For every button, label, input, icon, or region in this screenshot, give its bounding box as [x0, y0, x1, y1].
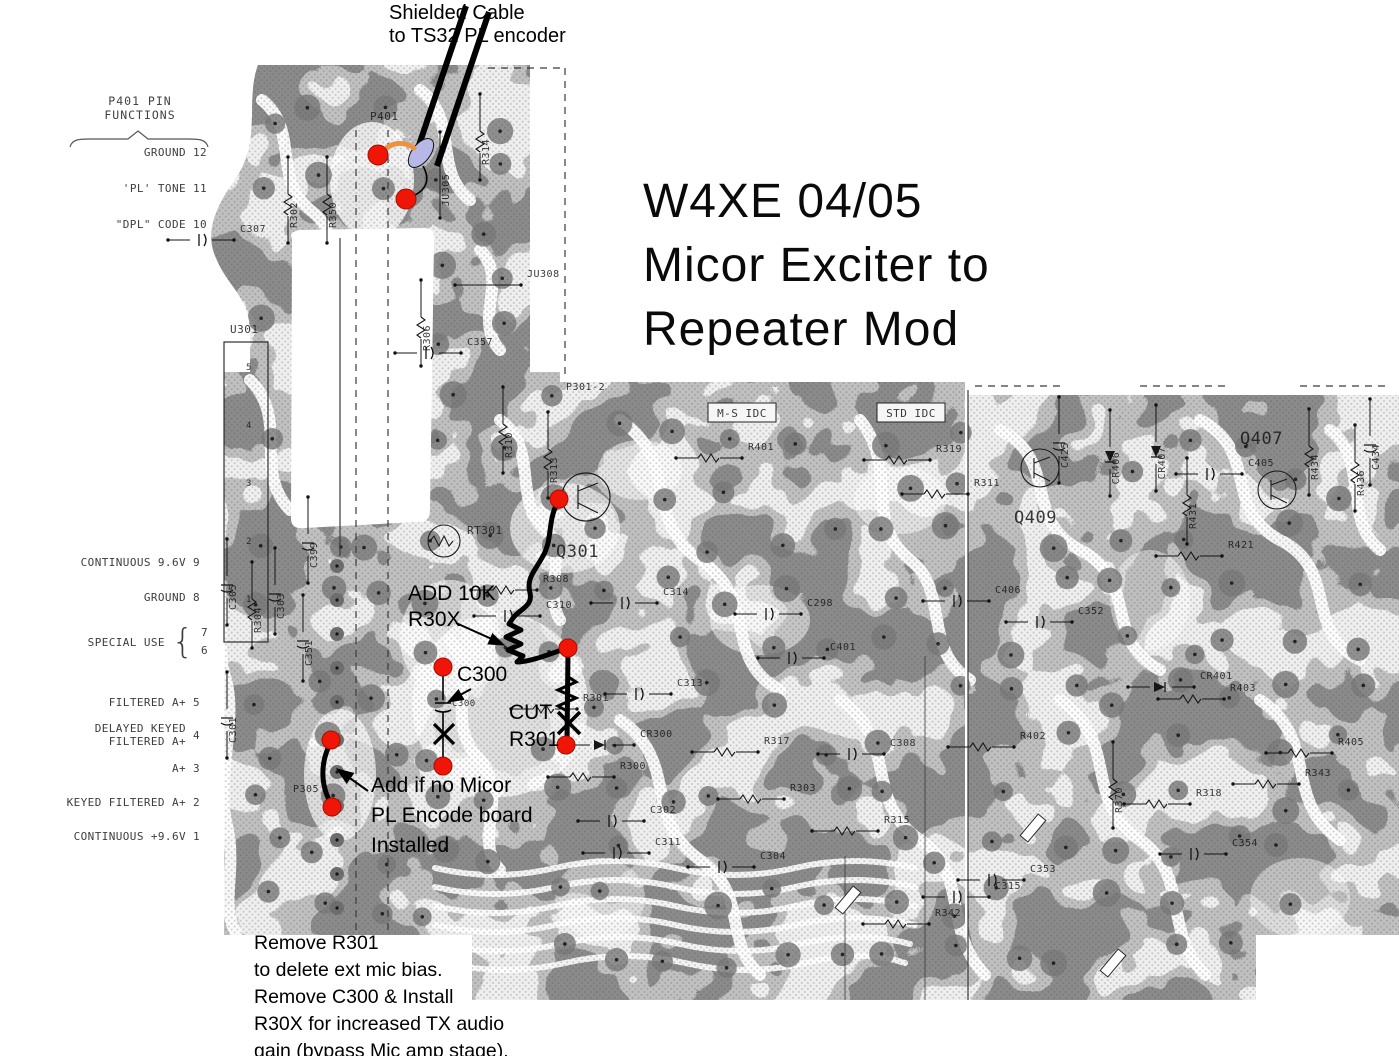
- pin-function-label: CONTINUOUS 9.6V: [81, 556, 186, 569]
- pcb-ref-label: C315: [995, 881, 1021, 892]
- c300-callout: C300: [457, 663, 507, 687]
- pcb-ref-label: CR406: [1111, 452, 1122, 485]
- pin-function-label: SPECIAL USE: [88, 636, 165, 649]
- pcb-ref-label: C311: [655, 837, 681, 848]
- pcb-ref-label: 4: [246, 421, 252, 431]
- pcb-ref-label: R401: [748, 442, 774, 453]
- pin-function-row: GROUND12: [0, 146, 208, 159]
- pin-number: 3: [193, 762, 208, 775]
- pcb-ref-label: R343: [1305, 768, 1331, 779]
- page-title: W4XE 04/05 Micor Exciter to Repeater Mod: [643, 170, 990, 362]
- shielded-cable-note: Shielded Cable to TS32 PL encoder: [389, 2, 566, 48]
- bottom-instructions: Remove R301 to delete ext mic bias. Remo…: [254, 930, 509, 1056]
- pin-function-row: GROUND8: [0, 591, 208, 604]
- pcb-ref-label: C314: [663, 587, 689, 598]
- pcb-ref-label: Q407: [1240, 429, 1283, 449]
- pcb-ref-label: JU308: [527, 269, 560, 280]
- pcb-ref-label: C357: [467, 337, 493, 348]
- pcb-ref-label: R405: [1338, 737, 1364, 748]
- pcb-ref-label: C351: [304, 640, 315, 666]
- pcb-ref-label: C313: [677, 678, 703, 689]
- pin-number: 2: [193, 796, 208, 809]
- pcb-ref-label: C301: [228, 717, 239, 743]
- pcb-ref-label: P301-2: [566, 382, 605, 393]
- pcb-ref-label: R318: [1196, 788, 1222, 799]
- pcb-ref-label: C425: [1060, 442, 1071, 468]
- pcb-ref-label: 5: [246, 363, 252, 373]
- pcb-ref-label: JU305: [441, 174, 452, 207]
- pcb-ref-label: R402: [1020, 731, 1046, 742]
- pin-brace: {: [172, 625, 194, 659]
- pcb-ref-label: R315: [884, 815, 910, 826]
- pin-function-row: CONTINUOUS +9.6V1: [0, 830, 208, 843]
- pin-function-row: "DPL" CODE10: [0, 218, 208, 231]
- pin-function-row: KEYED FILTERED A+2: [0, 796, 208, 809]
- pcb-ref-label: C352: [1078, 606, 1104, 617]
- pcb-ref-label: C305: [228, 584, 239, 610]
- pcb-ref-label: C405: [1248, 458, 1274, 469]
- pcb-ref-label: R308: [543, 574, 569, 585]
- pin-function-row: DELAYED KEYED FILTERED A+4: [0, 722, 208, 748]
- pcb-ref-label: R403: [1230, 683, 1256, 694]
- pcb-ref-label: R300: [620, 761, 646, 772]
- pcb-ref-label: C298: [807, 598, 833, 609]
- pin-function-row: FILTERED A+5: [0, 696, 208, 709]
- pin-function-label: 'PL' TONE: [123, 182, 186, 195]
- pcb-ref-label: STD IDC: [886, 407, 936, 420]
- pcb-ref-label: R421: [1228, 540, 1254, 551]
- pcb-ref-label: C401: [830, 642, 856, 653]
- pcb-ref-label: C434: [1371, 444, 1382, 470]
- pcb-scan-image: P401R314JU305R350R302C307JU308U301R306C3…: [0, 0, 1399, 1056]
- pcb-ref-label: C307: [240, 224, 266, 235]
- pcb-ref-label: Q301: [556, 542, 599, 562]
- pin-number: 12: [193, 146, 208, 159]
- pcb-ref-label: R342: [935, 908, 961, 919]
- pin-number: 7 6: [201, 624, 208, 660]
- pcb-ref-label: 1: [246, 595, 252, 605]
- pcb-ref-label: M-S IDC: [717, 407, 767, 420]
- pcb-ref-label: U301: [230, 323, 259, 336]
- pin-function-row: 'PL' TONE11: [0, 182, 208, 195]
- pin-function-label: CONTINUOUS +9.6V: [74, 830, 186, 843]
- pcb-ref-label: 2: [246, 537, 252, 547]
- pin-number: 10: [193, 218, 208, 231]
- cut-r301-note: CUT R301: [509, 699, 559, 753]
- pin-function-row: A+3: [0, 762, 208, 775]
- pcb-ref-label: C308: [890, 738, 916, 749]
- pin-functions-brace: [70, 131, 208, 147]
- pin-function-label: A+: [172, 762, 186, 775]
- pin-number: 11: [193, 182, 208, 195]
- pcb-ref-label: P401: [370, 110, 399, 123]
- pcb-ref-label: R301: [583, 693, 609, 704]
- pin-function-label: "DPL" CODE: [116, 218, 186, 231]
- pcb-ref-label: 3: [246, 479, 252, 489]
- pcb-ref-label: C406: [995, 585, 1021, 596]
- pcb-ref-label: C353: [1030, 864, 1056, 875]
- pin-functions-heading: P401 PIN FUNCTIONS: [78, 94, 202, 122]
- pcb-ref-label: C304: [760, 851, 786, 862]
- pin-number: 5: [193, 696, 208, 709]
- pcb-ref-label: R311: [974, 478, 1000, 489]
- pcb-ref-label: C399: [309, 542, 320, 568]
- pin-number: 1: [193, 830, 208, 843]
- pin-function-label: DELAYED KEYED FILTERED A+: [95, 722, 186, 748]
- pin-function-label: GROUND: [144, 591, 186, 604]
- pcb-ref-label: Q409: [1014, 508, 1057, 528]
- pin-function-label: FILTERED A+: [109, 696, 186, 709]
- pcb-ref-label: C354: [1232, 838, 1258, 849]
- board-notch: [291, 228, 434, 528]
- add-jumper-note: Add if no Micor PL Encode board Installe…: [371, 771, 533, 861]
- pin-number: 9: [193, 556, 208, 569]
- pin-number: 8: [193, 591, 208, 604]
- pcb-ref-label: C310: [546, 600, 572, 611]
- pcb-ref-label: R303: [790, 783, 816, 794]
- pin-number: 4: [193, 729, 208, 742]
- pcb-ref-label: CR407: [1157, 447, 1168, 480]
- pcb-ref-label: CR300: [640, 729, 673, 740]
- pin-function-label: KEYED FILTERED A+: [67, 796, 186, 809]
- pcb-ref-label: P305: [293, 784, 319, 795]
- pin-function-row: SPECIAL USE{7 6: [0, 624, 208, 660]
- pcb-ref-label: R317: [764, 736, 790, 747]
- pcb-ref-label: RT301: [467, 524, 503, 537]
- r301-lead-wire: [567, 650, 568, 744]
- pcb-ref-label: C302: [650, 805, 676, 816]
- pcb-mod-diagram: P401R314JU305R350R302C307JU308U301R306C3…: [0, 0, 1399, 1056]
- pin-function-label: GROUND: [144, 146, 186, 159]
- add-10k-note: ADD 10K R30X: [408, 581, 496, 633]
- pcb-ref-label: C303: [276, 593, 287, 619]
- pcb-ref-label: CR401: [1200, 671, 1233, 682]
- pcb-ref-label: R319: [936, 444, 962, 455]
- pin-function-row: CONTINUOUS 9.6V9: [0, 556, 208, 569]
